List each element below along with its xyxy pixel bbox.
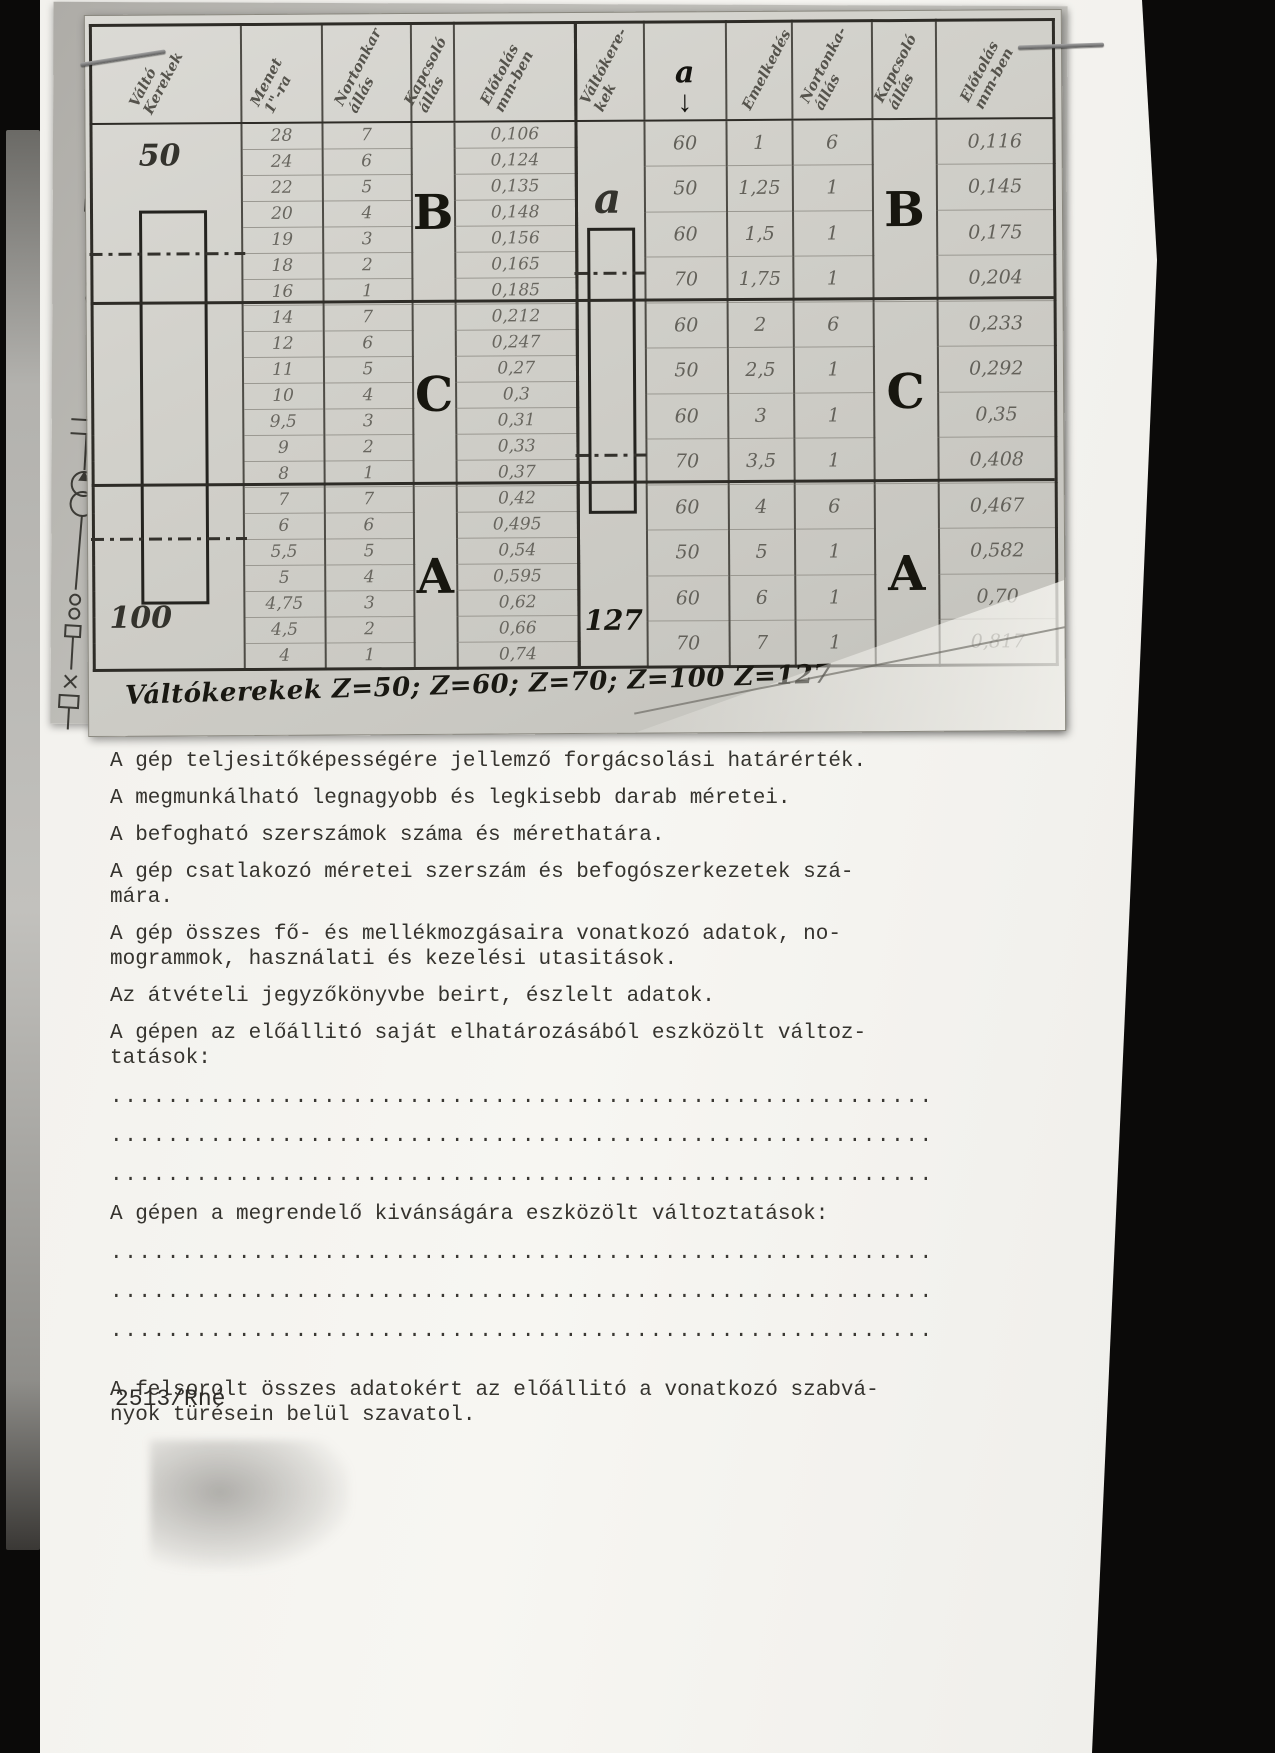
table-cell: 5 bbox=[325, 538, 414, 565]
column-header: Váltó Kerekek bbox=[90, 25, 241, 124]
gear-count-top: 50 bbox=[139, 138, 181, 173]
table-cell: 5 bbox=[322, 174, 411, 201]
table-cell: 4 bbox=[324, 382, 413, 409]
table-cell: 70 bbox=[647, 621, 729, 667]
table-cell: 1 bbox=[794, 529, 874, 575]
table-cell: 2 bbox=[324, 434, 413, 461]
table-cell: 1 bbox=[793, 256, 873, 302]
table-cell: 4,5 bbox=[244, 617, 325, 643]
dotted-fill-line: ........................................… bbox=[110, 1085, 960, 1110]
reference-number: 2513/Rné bbox=[115, 1386, 225, 1412]
table-cell: 1 bbox=[794, 392, 874, 438]
table-cell: 50 bbox=[646, 530, 728, 576]
table-cell: 1,5 bbox=[727, 211, 793, 257]
dotted-fill-line: ........................................… bbox=[110, 1163, 960, 1188]
table-cell: 6 bbox=[794, 483, 874, 529]
table-cell: 7 bbox=[729, 620, 795, 666]
table-cell: 28 bbox=[241, 123, 322, 149]
paragraph: A gépen a megrendelő kivánságára eszközö… bbox=[110, 1202, 960, 1227]
table-cell: 3 bbox=[728, 393, 794, 439]
table-cell: 6 bbox=[792, 119, 872, 165]
table-cell: 1 bbox=[794, 438, 874, 484]
feed-value-cell: 0,74 bbox=[457, 641, 579, 668]
paragraph: A gépen az előállitó saját elhatározásáb… bbox=[110, 1021, 960, 1071]
paragraph: A gép összes fő- és mellékmozgásaira von… bbox=[110, 922, 960, 972]
feed-value-cell: 0,31 bbox=[456, 407, 578, 434]
table-cell: 1,25 bbox=[726, 165, 792, 211]
feed-value-cell: 0,165 bbox=[455, 251, 577, 278]
table-cell: 3 bbox=[325, 590, 414, 617]
feed-value-cell: 0,292 bbox=[937, 346, 1055, 392]
table-cell: 5,5 bbox=[244, 539, 325, 565]
table-cell: 19 bbox=[242, 227, 323, 253]
switch-position-letter: B bbox=[411, 122, 455, 304]
column-header: Menet 1"-ra bbox=[240, 24, 322, 123]
gear-count-bottom: 127 bbox=[584, 604, 643, 637]
table-cell: 6 bbox=[793, 301, 873, 347]
table-cell: 9,5 bbox=[243, 409, 324, 435]
feed-value-cell: 0,247 bbox=[455, 329, 577, 356]
table-cell: 24 bbox=[241, 149, 322, 175]
dotted-fill-line: ........................................… bbox=[110, 1241, 960, 1266]
column-header: Kapcsoló állás bbox=[871, 20, 936, 119]
table-cell: 50 bbox=[644, 166, 726, 212]
table-cell: 1 bbox=[792, 165, 872, 211]
table-cell: 3 bbox=[323, 226, 412, 253]
feed-value-cell: 0,233 bbox=[937, 300, 1055, 346]
gear-sketch-column: a127 bbox=[576, 121, 647, 667]
table-cell: 4 bbox=[325, 564, 414, 591]
feed-value-cell: 0,156 bbox=[455, 225, 577, 252]
typewritten-text-block: Az esztorga villamos … A gép teljesitőké… bbox=[110, 712, 960, 1440]
table-cell: 14 bbox=[242, 305, 323, 331]
feed-value-cell: 0,148 bbox=[454, 199, 576, 226]
switch-position-letter: B bbox=[872, 119, 937, 301]
paragraph: A befogható szerszámok száma és mérethat… bbox=[110, 823, 960, 848]
table-cell: 2 bbox=[325, 616, 414, 643]
table-cell: 7 bbox=[243, 487, 324, 513]
table-cell: 7 bbox=[324, 486, 413, 513]
table-cell: 5 bbox=[244, 565, 325, 591]
feed-value-cell: 0,35 bbox=[938, 391, 1056, 437]
feed-value-cell: 0,204 bbox=[937, 255, 1055, 301]
column-header: Előtolás mm-ben bbox=[935, 20, 1054, 119]
table-cell: 3 bbox=[324, 408, 413, 435]
feed-value-cell: 0,467 bbox=[938, 482, 1056, 528]
feed-value-cell: 0,408 bbox=[938, 437, 1056, 483]
table-cell: 1 bbox=[793, 210, 873, 256]
feed-value-cell: 0,106 bbox=[454, 121, 576, 148]
feed-value-cell: 0,595 bbox=[457, 563, 579, 590]
table-cell: 6 bbox=[324, 512, 413, 539]
table-cell: 60 bbox=[646, 484, 728, 530]
table-cell: 70 bbox=[646, 439, 728, 485]
table-cell: 1 bbox=[795, 574, 875, 620]
table-cell: 60 bbox=[644, 120, 726, 166]
paragraph: A felsorolt összes adatokért az előállit… bbox=[110, 1378, 960, 1428]
feed-value-cell: 0,212 bbox=[455, 303, 577, 330]
dotted-fill-line: ........................................… bbox=[110, 1319, 960, 1344]
table-cell: 2 bbox=[727, 302, 793, 348]
ink-smudge bbox=[150, 1440, 350, 1570]
table-cell: 1 bbox=[793, 347, 873, 393]
feed-value-cell: 0,116 bbox=[936, 118, 1054, 164]
gear-sketch bbox=[139, 210, 209, 604]
feed-value-cell: 0,33 bbox=[456, 433, 578, 460]
table-cell: 7 bbox=[323, 304, 412, 331]
table-cell: 1 bbox=[726, 120, 792, 166]
table-cell: 6 bbox=[729, 575, 795, 621]
feed-value-cell: 0,175 bbox=[937, 209, 1055, 255]
paragraph: A gép csatlakozó méretei szerszám és bef… bbox=[110, 860, 960, 910]
table-cell: 20 bbox=[241, 201, 322, 227]
gear-sketch-column: 50100 bbox=[91, 123, 244, 670]
column-header: Nortonkar állás bbox=[321, 23, 411, 122]
feed-value-cell: 0,42 bbox=[456, 485, 578, 512]
table-cell: 7 bbox=[322, 122, 411, 149]
column-header: a↓ bbox=[643, 22, 726, 121]
feed-value-cell: 0,495 bbox=[456, 511, 578, 538]
feed-value-cell: 0,66 bbox=[457, 615, 579, 642]
centerline bbox=[89, 252, 245, 255]
table-cell: 60 bbox=[645, 302, 727, 348]
table-cell: 60 bbox=[646, 393, 728, 439]
gear-count-top: a bbox=[594, 174, 622, 223]
table-cell: 5 bbox=[323, 356, 412, 383]
table-cell: 5 bbox=[728, 529, 794, 575]
dotted-fill-line: ........................................… bbox=[110, 1124, 960, 1149]
switch-position-letter: C bbox=[412, 304, 456, 486]
gear-sketch bbox=[587, 228, 637, 514]
table-cell: 70 bbox=[645, 257, 727, 303]
table-cell: 4 bbox=[728, 484, 794, 530]
scanned-document-page: { "photo": { "caption": "Váltókerekek Z=… bbox=[0, 0, 1275, 1753]
table-cell: 4 bbox=[322, 200, 411, 227]
table-cell: 50 bbox=[645, 348, 727, 394]
table-cell: 6 bbox=[322, 148, 411, 175]
table-cell: 2 bbox=[323, 252, 412, 279]
page-stack-edge bbox=[6, 130, 40, 1550]
switch-position-letter: A bbox=[413, 486, 457, 668]
table-cell: 11 bbox=[242, 357, 323, 383]
feed-value-cell: 0,135 bbox=[454, 173, 576, 200]
centerline bbox=[91, 537, 247, 540]
feed-value-cell: 0,62 bbox=[457, 589, 579, 616]
feed-value-cell: 0,27 bbox=[455, 355, 577, 382]
column-header: Kapcsoló állás bbox=[410, 23, 454, 122]
table-cell: 10 bbox=[243, 383, 324, 409]
table-cell: 22 bbox=[241, 175, 322, 201]
paragraph: Az átvételi jegyzőkönyvbe beirt, észlelt… bbox=[110, 984, 960, 1009]
table-cell: 12 bbox=[242, 331, 323, 357]
feed-value-cell: 0,124 bbox=[454, 147, 576, 174]
arrow-down-icon: ↓ bbox=[645, 88, 725, 115]
table-cell: 60 bbox=[647, 575, 729, 621]
centerline bbox=[575, 454, 649, 457]
table-cell: 4 bbox=[244, 643, 325, 669]
column-header: Váltókere- kek bbox=[575, 22, 644, 121]
table-cell: 9 bbox=[243, 435, 324, 461]
stapled-table-photo: Váltó KerekekMenet 1"-raNortonkar állásK… bbox=[84, 9, 1066, 737]
gear-count-bottom: 100 bbox=[109, 600, 172, 635]
feed-value-cell: 0,145 bbox=[936, 164, 1054, 210]
dotted-fill-line: ........................................… bbox=[110, 1280, 960, 1305]
table-cell: 60 bbox=[645, 211, 727, 257]
switch-position-letter: C bbox=[873, 301, 938, 483]
table-cell: 6 bbox=[243, 513, 324, 539]
feed-value-cell: 0,54 bbox=[457, 537, 579, 564]
table-cell: 6 bbox=[323, 330, 412, 357]
table-cell: 18 bbox=[242, 253, 323, 279]
paragraph: A megmunkálható legnagyobb és legkisebb … bbox=[110, 786, 960, 811]
centerline bbox=[574, 272, 648, 275]
table-cell: 1 bbox=[325, 642, 414, 669]
column-header: Emelkedés bbox=[725, 21, 792, 120]
paragraph: A gép teljesitőképességére jellemző forg… bbox=[110, 749, 960, 774]
table-cell: 3,5 bbox=[728, 438, 794, 484]
table-cell: 4,75 bbox=[244, 591, 325, 617]
table-cell: 1,75 bbox=[727, 256, 793, 302]
gear-a-arrow-header: a↓ bbox=[645, 58, 725, 115]
column-header: Nortonka- állás bbox=[791, 21, 872, 120]
feed-value-cell: 0,3 bbox=[456, 381, 578, 408]
table-cell: 2,5 bbox=[727, 347, 793, 393]
feed-value-cell: 0,582 bbox=[938, 528, 1056, 574]
column-header: Előtolás mm-ben bbox=[453, 22, 576, 121]
